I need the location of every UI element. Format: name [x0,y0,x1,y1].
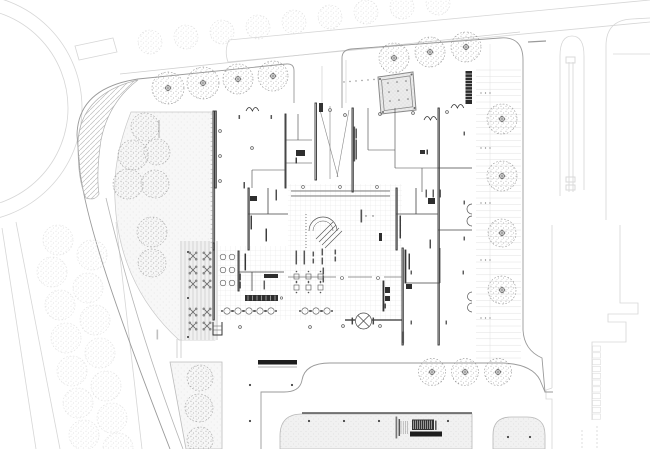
tree-symbol [419,359,446,386]
tree-symbol [91,371,121,401]
tree-symbol [144,139,170,165]
tree-symbol [223,64,253,94]
tree-symbol [488,219,516,247]
tree-symbol [415,37,445,67]
tree-symbol [488,276,516,304]
tree-symbol [187,67,219,99]
tree-symbol [138,30,162,54]
tree-symbol [210,20,234,44]
tree-symbol [131,113,159,141]
tree-symbol [57,356,87,386]
tree-symbol [451,32,481,62]
tree-symbol [141,170,169,198]
tree-symbol [85,338,115,368]
tree-symbol [77,240,107,270]
tree-symbol [485,359,512,386]
tree-symbol [174,25,198,49]
tree-symbol [246,15,270,39]
tree-symbol [63,388,93,418]
tree-symbol [37,257,67,287]
tree-symbol [138,249,166,277]
tree-symbol [187,365,213,391]
tree-symbol [487,161,517,191]
site-plan-drawing [0,0,650,449]
tree-symbol [137,217,167,247]
tree-symbol [118,140,148,170]
tree-symbol [113,169,143,199]
tree-symbol [73,273,103,303]
tree-symbol [487,104,517,134]
tree-symbol [452,359,479,386]
tree-symbol [185,394,213,422]
tree-symbol [318,5,342,29]
tree-symbol [379,43,409,73]
tree-symbol [354,0,378,24]
tree-symbol [45,290,75,320]
tree-symbol [51,323,81,353]
tree-symbol [80,305,110,335]
tree-symbol [69,420,99,449]
tree-symbol [97,403,127,433]
tree-symbol [43,225,73,255]
tree-symbol [258,61,288,91]
tree-symbol [282,10,306,34]
tree-symbol [152,72,184,104]
site-plan-page [0,0,650,449]
